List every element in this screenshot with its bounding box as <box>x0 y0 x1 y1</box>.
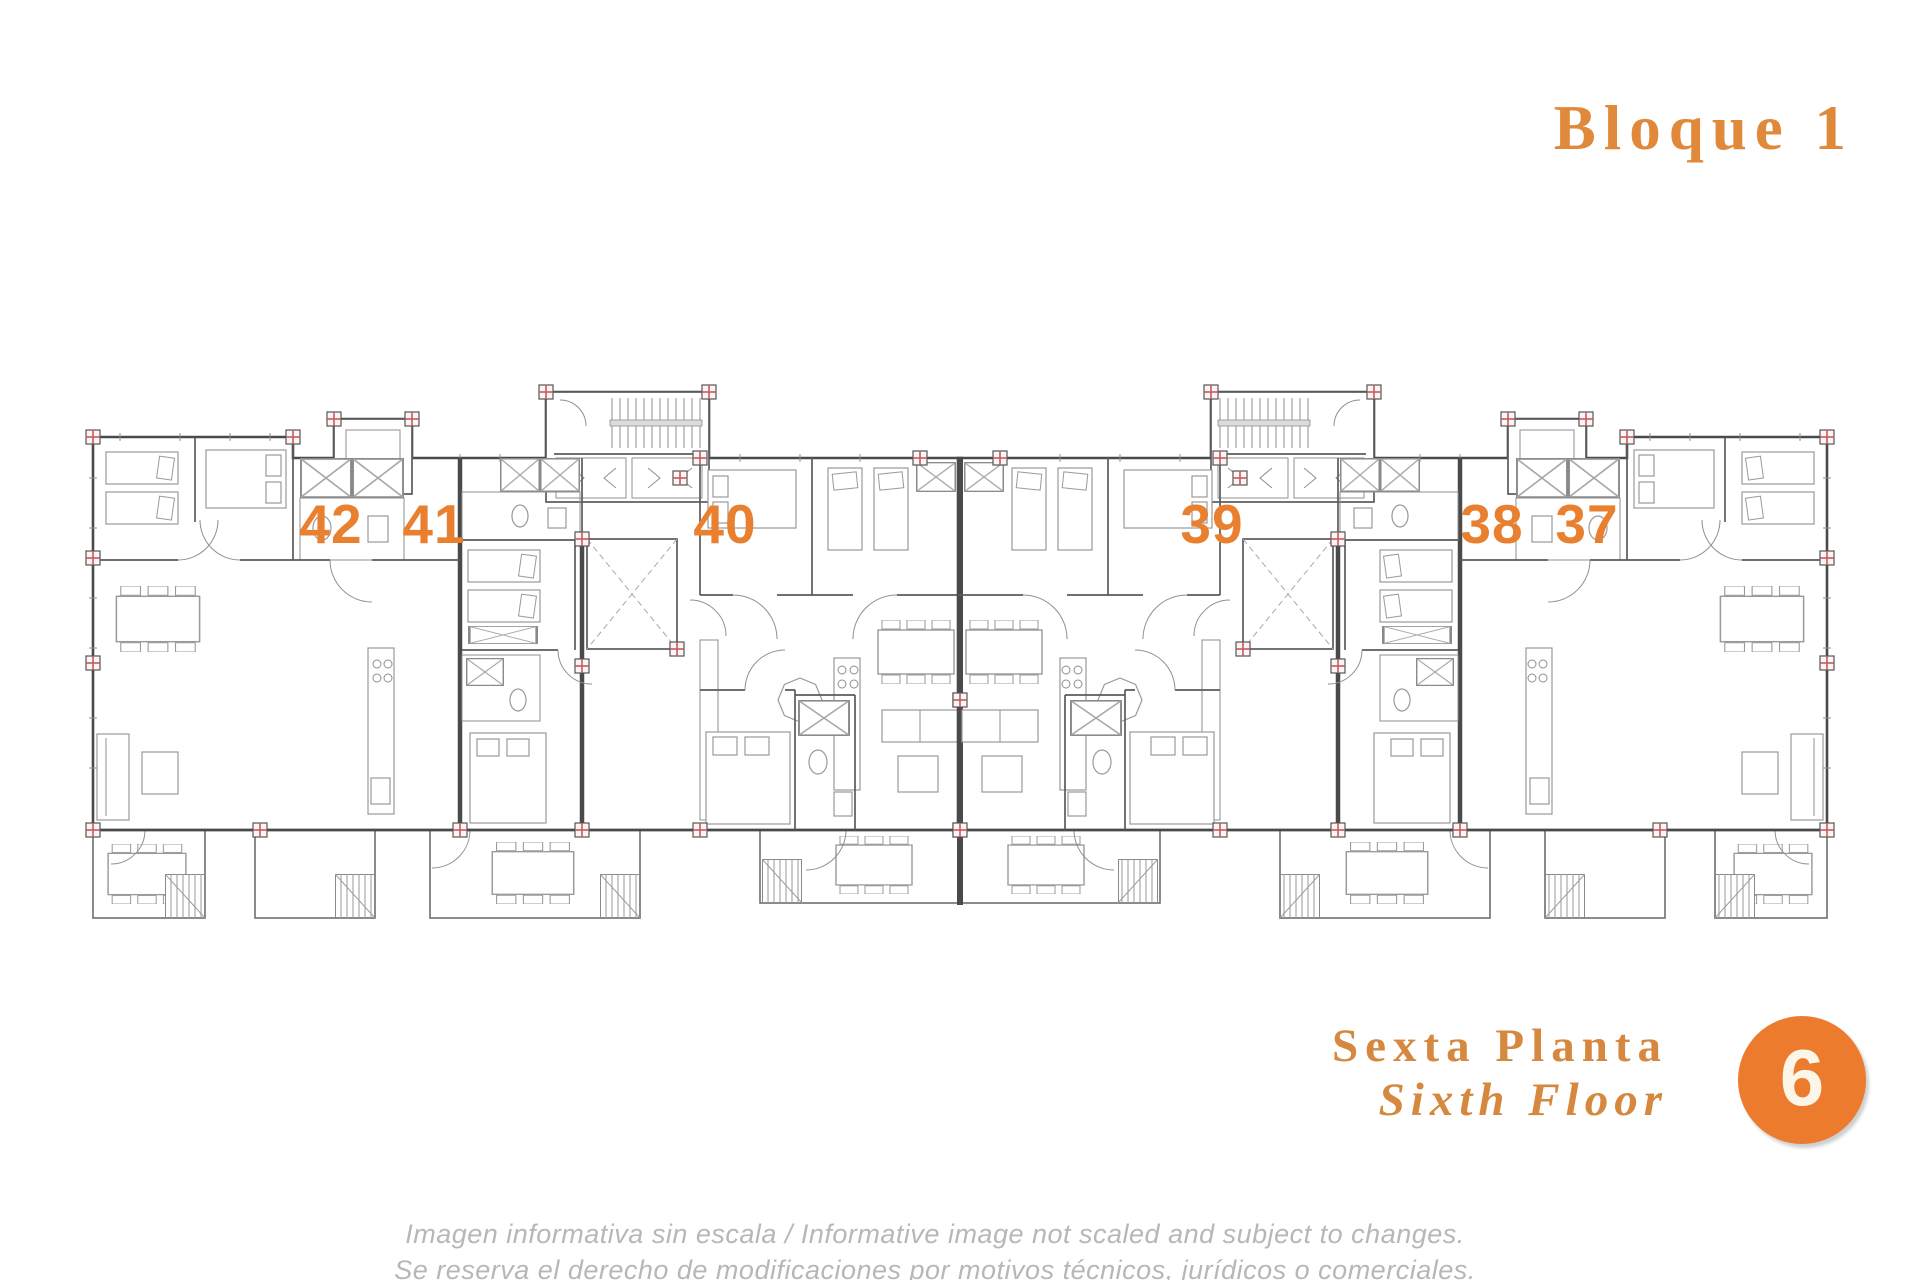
disclaimer: Imagen informativa sin escala / Informat… <box>0 1216 1870 1280</box>
lightwell <box>587 539 677 649</box>
unit-number-39: 39 <box>1180 493 1243 555</box>
building-left-half <box>86 385 967 918</box>
double-bed <box>470 733 546 823</box>
disclaimer-line-1: Imagen informativa sin escala / Informat… <box>0 1216 1870 1252</box>
unit-number-42: 42 <box>299 493 362 555</box>
floor-name-es: Sexta Planta <box>1332 1020 1668 1072</box>
disclaimer-line-2: Se reserva el derecho de modificaciones … <box>0 1252 1870 1280</box>
block-title: Bloque 1 <box>1554 92 1854 165</box>
terraces <box>93 830 960 918</box>
floor-number-badge: 6 <box>1738 1016 1866 1144</box>
unit-number-41: 41 <box>402 493 465 555</box>
floor-name-en: Sixth Floor <box>1332 1072 1668 1128</box>
unit-number-37: 37 <box>1555 493 1618 555</box>
page: 42 41 40 39 38 37 Bloque 1 Sexta Planta … <box>0 0 1920 1280</box>
unit-number-38: 38 <box>1460 493 1523 555</box>
unit-number-40: 40 <box>693 493 756 555</box>
double-bed <box>206 450 286 508</box>
floor-number: 6 <box>1780 1032 1825 1124</box>
floor-label: Sexta Planta Sixth Floor <box>1332 1020 1668 1128</box>
double-bed <box>706 732 790 824</box>
building-right-half <box>953 385 1834 918</box>
